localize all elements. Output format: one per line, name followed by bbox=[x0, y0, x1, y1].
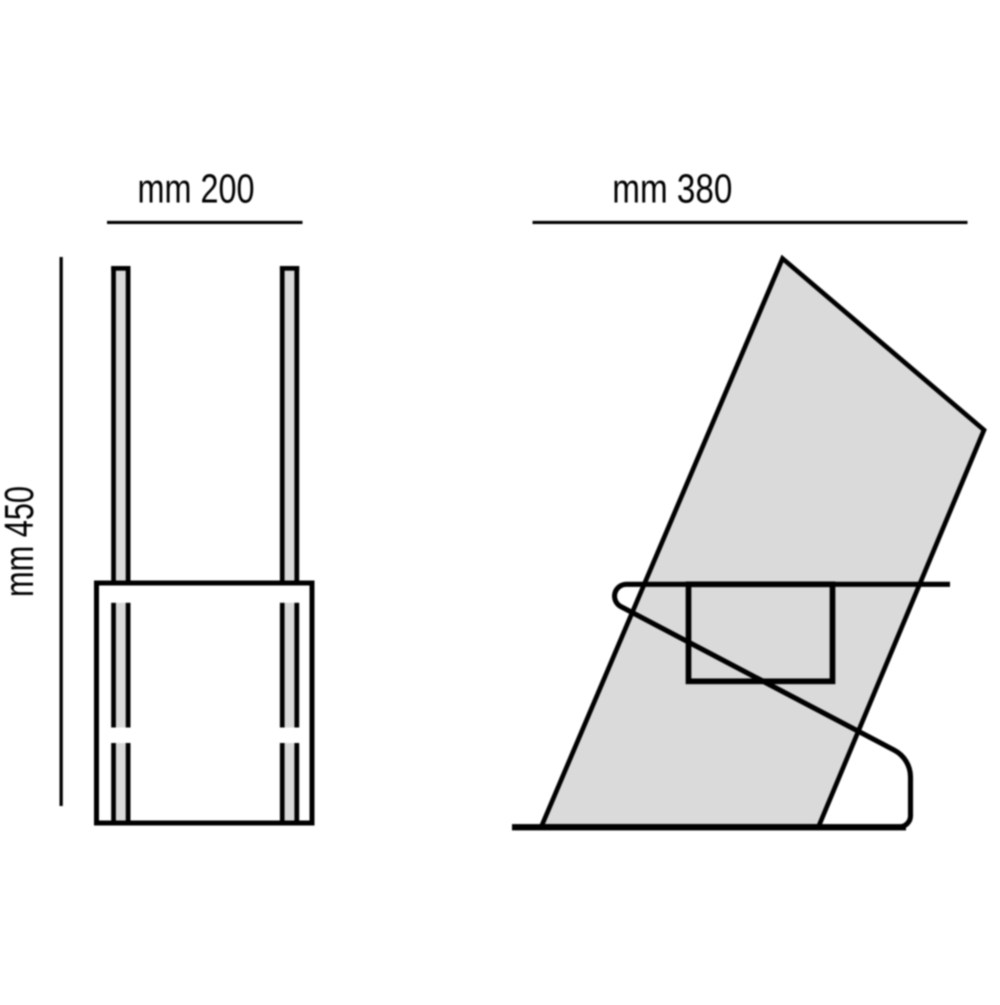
svg-text:mm 200: mm 200 bbox=[138, 166, 255, 212]
svg-text:mm 380: mm 380 bbox=[612, 166, 732, 212]
svg-text:mm 450: mm 450 bbox=[0, 486, 42, 597]
